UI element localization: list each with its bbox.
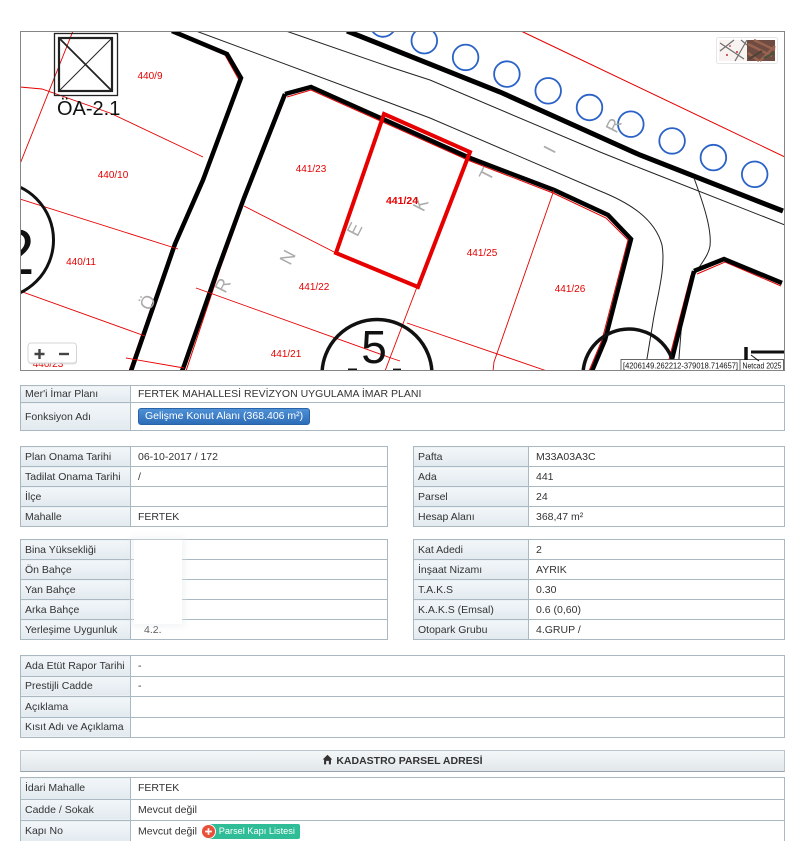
svg-text:441/25: 441/25: [467, 248, 498, 259]
svg-text:441/26: 441/26: [555, 284, 586, 295]
svg-text:2: 2: [20, 216, 35, 288]
svg-text:440/11: 440/11: [66, 257, 96, 268]
svg-text:441/22: 441/22: [299, 282, 330, 293]
svg-text:5: 5: [361, 321, 387, 371]
svg-text:441/23: 441/23: [296, 164, 327, 175]
svg-text:Netcad 2025: Netcad 2025: [743, 361, 782, 371]
svg-text:[4206149.262212-379018.714657]: [4206149.262212-379018.714657]: [623, 361, 738, 371]
svg-text:441/21: 441/21: [271, 349, 302, 360]
svg-text:441/24: 441/24: [386, 195, 418, 207]
svg-text:ÖA-2.1: ÖA-2.1: [57, 98, 120, 120]
svg-text:440/10: 440/10: [98, 170, 129, 181]
svg-text:440/9: 440/9: [137, 71, 162, 82]
